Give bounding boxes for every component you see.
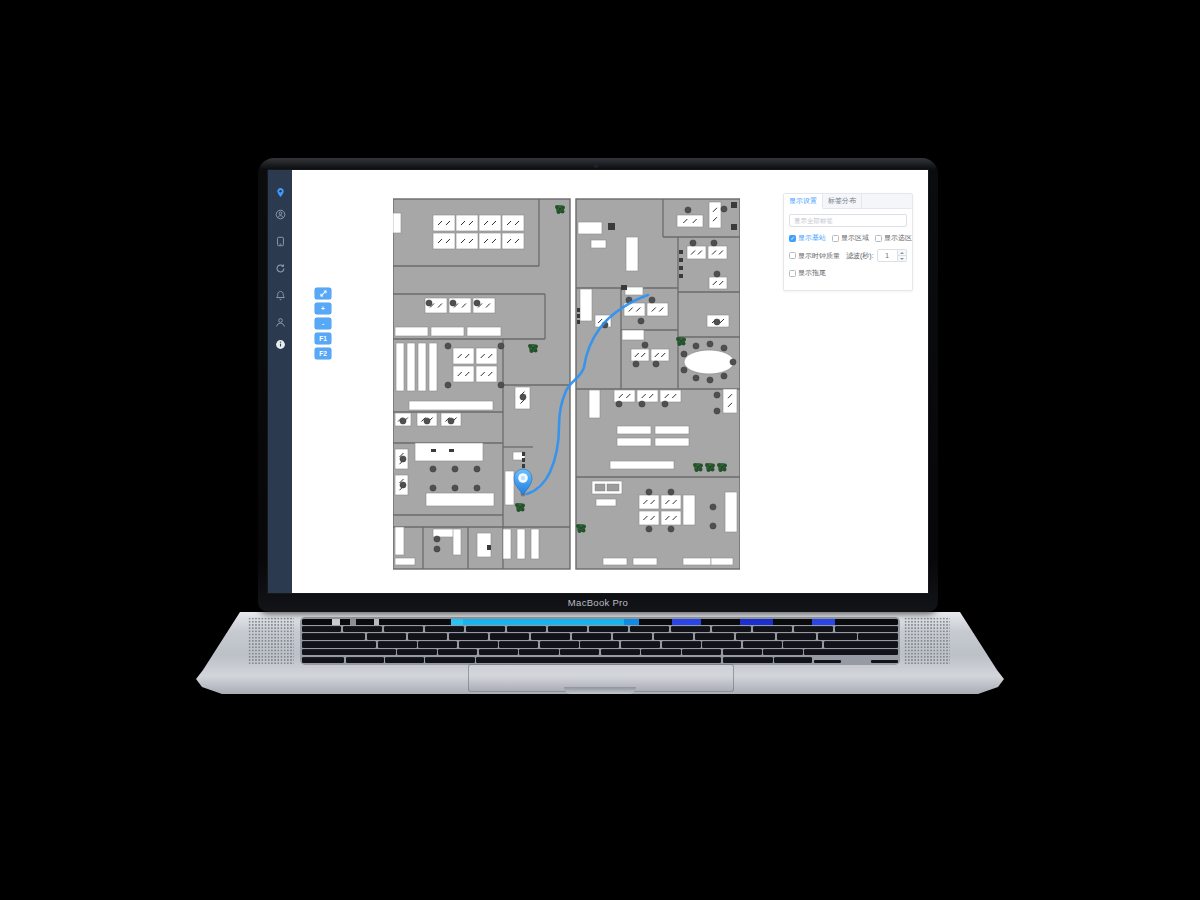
- checkbox-box[interactable]: [832, 235, 839, 242]
- fit-screen-button[interactable]: [315, 288, 331, 299]
- touch-bar: [302, 619, 898, 625]
- app-screen: +-F1F2 显示设置标签分布 ✓显示基站显示区域显示选区 显示时钟质量 滤波(…: [268, 170, 928, 593]
- sidebar-item-user-icon[interactable]: [274, 316, 286, 328]
- keyboard-key: [662, 641, 701, 647]
- sidebar-item-info-icon[interactable]: [274, 338, 286, 350]
- keyboard-key: [519, 649, 558, 655]
- filter-seconds-input[interactable]: 1: [877, 249, 898, 262]
- checkbox-box[interactable]: [789, 270, 796, 277]
- panel-tabs: 显示设置标签分布: [784, 194, 912, 209]
- keyboard-key: [753, 626, 792, 632]
- checkbox-label: 显示基站: [798, 233, 826, 243]
- keyboard-key: [560, 649, 599, 655]
- lid-open-notch: [564, 687, 636, 694]
- floorplan-map[interactable]: [393, 197, 740, 572]
- keyboard-key: [641, 649, 680, 655]
- keyboard-key: [723, 649, 762, 655]
- keyboard-key: [736, 633, 775, 639]
- keyboard-key: [302, 641, 376, 647]
- keyboard-key: [682, 649, 721, 655]
- tab-tag-distribution[interactable]: 标签分布: [823, 194, 862, 208]
- floor-f1-button[interactable]: F1: [315, 333, 331, 344]
- keyboard-key: [466, 626, 505, 632]
- conference-table: [684, 350, 734, 374]
- keyboard-key: [580, 641, 619, 647]
- keyboard-key: [507, 626, 546, 632]
- keyboard-key: [794, 626, 833, 632]
- keyboard-key: [763, 649, 802, 655]
- keyboard-key: [723, 657, 773, 663]
- keyboard: [300, 617, 900, 665]
- checkbox-label: 显示区域: [841, 233, 869, 243]
- checkbox-row-1: ✓显示基站显示区域显示选区: [789, 233, 907, 243]
- keyboard-key: [302, 649, 396, 655]
- keyboard-key: [438, 649, 477, 655]
- keyboard-key: [630, 626, 669, 632]
- zoom-in-button[interactable]: +: [315, 303, 331, 314]
- keyboard-key: [479, 649, 518, 655]
- number-spinner: [898, 249, 908, 262]
- zoom-out-button[interactable]: -: [315, 318, 331, 329]
- keyboard-key: [695, 633, 734, 639]
- checkbox-show-areas[interactable]: 显示区域: [832, 233, 869, 243]
- left-speaker-grille: [248, 617, 294, 665]
- keyboard-key: [783, 641, 822, 647]
- keyboard-key: [408, 633, 447, 639]
- sidebar-item-history-refresh-icon[interactable]: [274, 262, 286, 274]
- checkbox-row-2: 显示时钟质量 滤波(秒): 1: [789, 249, 907, 262]
- keyboard-key: [671, 626, 710, 632]
- laptop-lid: MacBook Pro +-F1F2 显示设置标签分布 ✓显示基站显示区域显示选…: [258, 158, 938, 612]
- keyboard-key: [397, 649, 436, 655]
- keyboard-key: [548, 626, 587, 632]
- keyboard-key: [835, 626, 898, 632]
- keyboard-key: [572, 633, 611, 639]
- keyboard-key: [476, 657, 721, 663]
- keyboard-key: [613, 633, 652, 639]
- keyboard-key: [378, 641, 417, 647]
- chevron-up-icon: [900, 252, 904, 254]
- keyboard-key: [425, 657, 475, 663]
- filter-seconds-label: 滤波(秒):: [846, 251, 874, 261]
- keyboard-key: [302, 657, 344, 663]
- keyboard-key: [589, 626, 628, 632]
- tag-search-input[interactable]: [789, 214, 907, 227]
- scene: MacBook Pro +-F1F2 显示设置标签分布 ✓显示基站显示区域显示选…: [0, 0, 1200, 900]
- keyboard-key: [540, 641, 579, 647]
- spinner-down-button[interactable]: [898, 256, 907, 261]
- checkbox-box[interactable]: [875, 235, 882, 242]
- keyboard-key: [712, 626, 751, 632]
- checkbox-show-clock-quality[interactable]: 显示时钟质量: [789, 251, 840, 261]
- keyboard-key: [621, 641, 660, 647]
- checkbox-show-trail[interactable]: 显示拖尾: [789, 268, 826, 278]
- keyboard-key: [774, 657, 812, 663]
- keyboard-key: [858, 633, 897, 639]
- checkbox-show-zones[interactable]: 显示选区: [875, 233, 912, 243]
- bezel-label: MacBook Pro: [258, 597, 938, 608]
- checkbox-show-base-stations[interactable]: ✓显示基站: [789, 233, 826, 243]
- checkbox-box[interactable]: [789, 252, 796, 259]
- floor-f2-button[interactable]: F2: [315, 348, 331, 359]
- keyboard-key: [367, 633, 406, 639]
- sidebar-item-user-circle-icon[interactable]: [274, 208, 286, 220]
- app-sidebar: [268, 170, 292, 593]
- sidebar-item-location-pin-icon[interactable]: [274, 186, 286, 198]
- keyboard-key: [302, 633, 365, 639]
- keyboard-key: [777, 633, 816, 639]
- laptop-base: [196, 612, 1004, 694]
- keyboard-key: [818, 633, 857, 639]
- keyboard-key: [343, 626, 382, 632]
- keyboard-key: [384, 626, 423, 632]
- keyboard-key: [385, 657, 423, 663]
- keyboard-key: [449, 633, 488, 639]
- keyboard-key: [601, 649, 640, 655]
- keyboard-key: [702, 641, 741, 647]
- keyboard-key: [654, 633, 693, 639]
- map-toolbar: +-F1F2: [315, 288, 331, 363]
- keyboard-key: [302, 626, 341, 632]
- keyboard-key: [743, 641, 782, 647]
- keyboard-key: [490, 633, 529, 639]
- keyboard-key: [531, 633, 570, 639]
- chevron-down-icon: [900, 258, 904, 260]
- right-speaker-grille: [904, 617, 950, 665]
- keyboard-key: [804, 649, 898, 655]
- keyboard-key: [425, 626, 464, 632]
- checkbox-row-3: 显示拖尾: [789, 268, 907, 278]
- checkbox-label: 显示拖尾: [798, 268, 826, 278]
- keyboard-key: [824, 641, 898, 647]
- sidebar-item-notification-bell-icon[interactable]: [274, 289, 286, 301]
- keyboard-key: [418, 641, 457, 647]
- tab-display-settings[interactable]: 显示设置: [784, 194, 823, 209]
- keyboard-key: [459, 641, 498, 647]
- floorplan-window-panes: [595, 484, 619, 491]
- webcam-icon: [594, 164, 598, 168]
- sidebar-item-tablet-device-icon[interactable]: [274, 235, 286, 247]
- display-settings-panel: 显示设置标签分布 ✓显示基站显示区域显示选区 显示时钟质量 滤波(秒): 1: [783, 193, 913, 291]
- checkbox-box[interactable]: ✓: [789, 235, 796, 242]
- key-rows: [302, 626, 898, 663]
- keyboard-key: [499, 641, 538, 647]
- checkbox-label: 显示选区: [884, 233, 912, 243]
- checkbox-label: 显示时钟质量: [798, 251, 840, 261]
- keyboard-key: [346, 657, 384, 663]
